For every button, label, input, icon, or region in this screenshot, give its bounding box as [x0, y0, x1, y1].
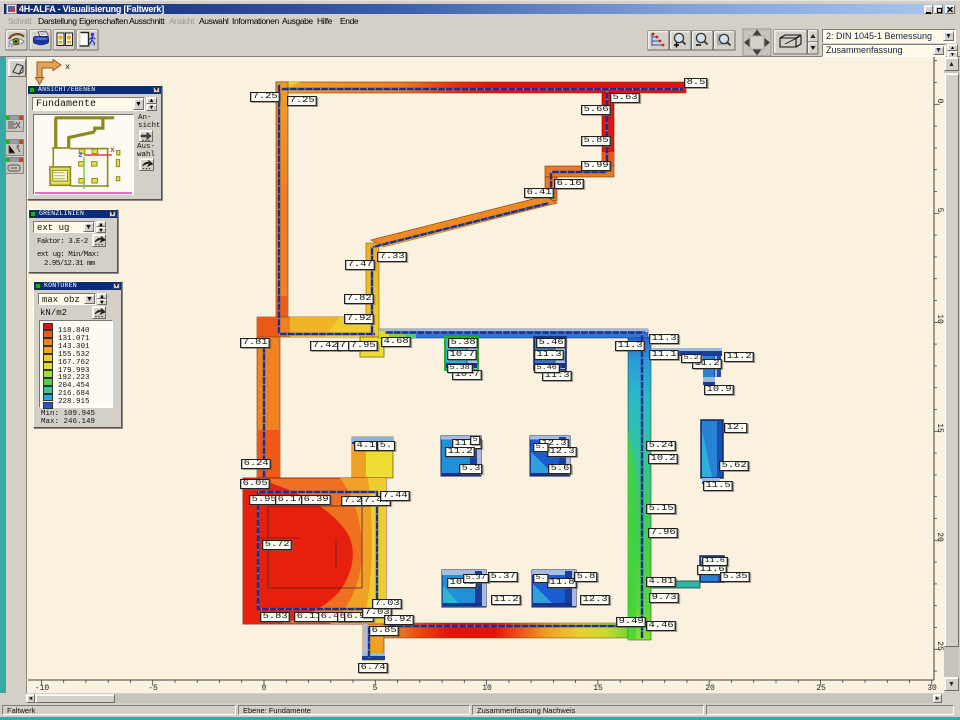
svg-text:x: x	[110, 146, 115, 155]
svg-text:z: z	[78, 151, 83, 160]
